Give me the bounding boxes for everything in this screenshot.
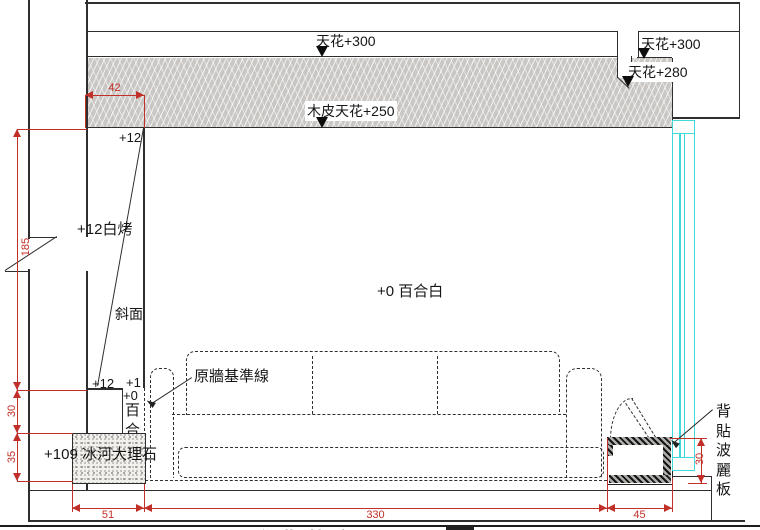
glass-column-bottom-cap [672,457,695,471]
level-marker-300-mid [316,46,328,57]
dim-arrow [13,433,21,441]
dim-51-value: 51 [72,509,144,521]
drawing-title-clipped: 沙發背牆立面圖 [180,526,600,530]
poly-board-label: 背貼波麗板 [715,402,732,500]
cabinet-top-hatch [607,437,671,445]
dim-arrow [72,504,80,512]
sofa-seat-front [178,447,604,478]
floor-line-main [30,490,711,492]
level-marker-300-right [638,48,650,59]
dim-arrow [13,473,21,481]
dim-arrow [13,425,21,433]
slope-panel-right-edge [143,128,145,388]
dim-42-ext-left [85,95,86,128]
slope-face-line [97,128,144,386]
slope-face-label: 斜面 [115,304,143,324]
cabinet-bottom-hatch [609,475,671,483]
dim-arrow [85,91,93,99]
glass-column-inner-line-1 [679,133,681,457]
level-marker-250 [316,117,328,128]
dim-arrow [13,129,21,137]
sofa-backrest-divider-1 [312,356,313,414]
sofa-seat-line [172,414,566,415]
plus12-top-label: +12 [119,130,141,145]
plus12-bottom-label: +12 [92,376,114,391]
step-top-line [672,476,712,478]
dim-arrow [664,504,672,512]
step-right-line [711,476,713,522]
marble-base-label: +109 冰河大理石 [44,443,157,464]
upper-box-bottom-line [672,117,740,119]
dim-arrow [136,91,144,99]
dim-arrow [136,504,144,512]
dim-left-tick-390 [17,390,87,391]
dim-left-tick-433 [17,433,73,434]
plus12-white-bake-label: +12白烤 [77,218,132,239]
dim-30-right-value: 30 [694,446,706,472]
dim-arrow [697,438,705,446]
elevation-drawing: 天花+300 木皮天花+250 天花+300 天花+280 +12 +12白烤 … [0,0,760,530]
dim-185-value: 185 [20,232,32,262]
glass-column-top-cap [672,120,695,134]
wall-line-left-upper [28,0,30,239]
dim-30-left-value: 30 [6,399,18,423]
lid-swing-arc [610,398,633,441]
dim-arrow [13,382,21,390]
dim-45-value: 45 [607,509,672,521]
ceiling-300-line [86,56,617,57]
dim-left-tick-481 [17,481,73,482]
slab-top-line [85,2,740,4]
dim-330-value: 330 [144,509,607,521]
dim-arrow [607,504,615,512]
cabinet-right-hatch [663,445,671,475]
dim-arrow [144,504,152,512]
level-marker-280 [622,76,634,87]
sofa-backrest-divider-2 [437,356,438,414]
wall-finish-label: +0 百合白 [377,280,443,301]
ceiling-slot-upper [617,31,639,57]
glass-column-inner-line-2 [684,133,686,457]
right-outer-wall [739,2,741,118]
dim-42-ext-right [144,95,145,128]
dim-arrow [13,390,21,398]
dim-arrow [599,504,607,512]
dim-left-tick-129 [17,129,87,130]
wall-line-left-lower [28,269,30,521]
dim-arrow [697,475,705,483]
ceiling-structure-line-right [637,31,740,32]
dim-35-value: 35 [6,445,18,469]
ceiling-280-right-label: 天花+280 [627,62,689,82]
sofa-base-line [145,480,607,481]
dim-bottom-ext-607 [607,438,608,512]
title-scale-box [446,526,474,530]
sofa-armrest-left [150,368,174,478]
sofa-backrest [186,351,560,415]
